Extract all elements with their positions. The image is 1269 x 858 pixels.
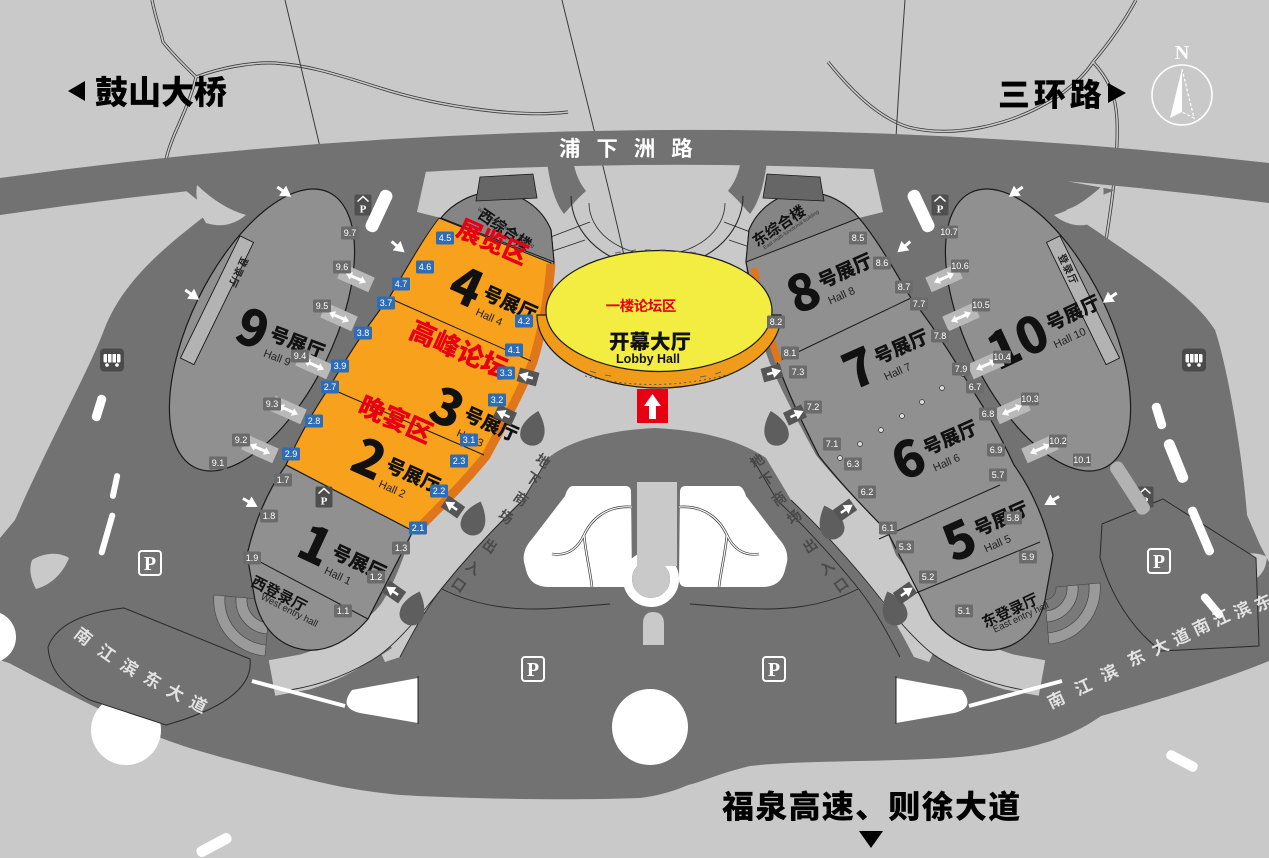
- svg-text:10.4: 10.4: [993, 352, 1011, 362]
- svg-text:6.2: 6.2: [861, 487, 874, 497]
- svg-text:2.2: 2.2: [433, 486, 446, 496]
- svg-text:2.3: 2.3: [453, 456, 466, 466]
- svg-text:1.3: 1.3: [395, 543, 408, 553]
- svg-text:1.8: 1.8: [263, 511, 276, 521]
- svg-text:6.7: 6.7: [969, 382, 982, 392]
- svg-text:10.5: 10.5: [972, 300, 990, 310]
- svg-text:6.9: 6.9: [990, 445, 1003, 455]
- svg-text:2.7: 2.7: [324, 382, 337, 392]
- svg-text:9.1: 9.1: [212, 458, 225, 468]
- svg-text:P: P: [1153, 551, 1165, 573]
- svg-text:4.7: 4.7: [395, 279, 408, 289]
- svg-text:7.7: 7.7: [913, 299, 926, 309]
- svg-text:P: P: [144, 553, 156, 575]
- svg-text:P: P: [360, 204, 367, 216]
- svg-text:5.2: 5.2: [922, 572, 935, 582]
- svg-text:8.6: 8.6: [876, 258, 889, 268]
- svg-text:P: P: [768, 659, 780, 681]
- svg-text:3.7: 3.7: [380, 298, 393, 308]
- svg-text:1.2: 1.2: [370, 572, 383, 582]
- svg-text:2.8: 2.8: [308, 416, 321, 426]
- svg-text:4.1: 4.1: [508, 345, 521, 355]
- svg-text:10.7: 10.7: [940, 227, 958, 237]
- svg-text:5.9: 5.9: [1022, 552, 1035, 562]
- svg-text:6.1: 6.1: [882, 523, 895, 533]
- svg-text:1.7: 1.7: [277, 475, 290, 485]
- svg-text:7.9: 7.9: [955, 364, 968, 374]
- svg-text:7.1: 7.1: [826, 439, 839, 449]
- svg-text:3.8: 3.8: [357, 328, 370, 338]
- svg-text:1.9: 1.9: [246, 553, 259, 563]
- svg-text:9.6: 9.6: [336, 262, 349, 272]
- svg-text:5.1: 5.1: [958, 606, 971, 616]
- svg-text:4.6: 4.6: [419, 262, 432, 272]
- svg-text:3.2: 3.2: [491, 395, 504, 405]
- svg-text:P: P: [321, 496, 328, 508]
- svg-text:1.1: 1.1: [337, 606, 350, 616]
- svg-text:7.8: 7.8: [934, 331, 947, 341]
- svg-text:10.2: 10.2: [1049, 436, 1067, 446]
- svg-text:N: N: [1175, 42, 1190, 64]
- svg-text:9.2: 9.2: [235, 435, 248, 445]
- svg-text:8.5: 8.5: [852, 233, 865, 243]
- svg-text:P: P: [937, 204, 944, 216]
- svg-text:5.3: 5.3: [899, 542, 912, 552]
- svg-text:2.1: 2.1: [412, 523, 425, 533]
- svg-text:4.5: 4.5: [439, 233, 452, 243]
- svg-text:9.7: 9.7: [344, 228, 357, 238]
- svg-text:3.3: 3.3: [500, 368, 513, 378]
- svg-text:8.7: 8.7: [898, 282, 911, 292]
- svg-text:P: P: [527, 659, 539, 681]
- svg-text:8.1: 8.1: [784, 348, 797, 358]
- svg-text:5.7: 5.7: [992, 470, 1005, 480]
- svg-text:2.9: 2.9: [285, 449, 298, 459]
- svg-text:7.3: 7.3: [792, 367, 805, 377]
- svg-text:3.9: 3.9: [334, 361, 347, 371]
- svg-text:9.3: 9.3: [266, 399, 279, 409]
- svg-text:8.2: 8.2: [770, 317, 783, 327]
- svg-text:10.1: 10.1: [1073, 455, 1091, 465]
- svg-text:9.4: 9.4: [294, 351, 307, 361]
- svg-text:10.3: 10.3: [1021, 394, 1039, 404]
- svg-text:6.8: 6.8: [982, 409, 995, 419]
- svg-text:10.6: 10.6: [951, 261, 969, 271]
- svg-text:4.2: 4.2: [518, 316, 531, 326]
- svg-text:5.8: 5.8: [1007, 513, 1020, 523]
- svg-text:6.3: 6.3: [847, 459, 860, 469]
- svg-text:7.2: 7.2: [807, 402, 820, 412]
- svg-text:3.1: 3.1: [463, 435, 476, 445]
- svg-text:Lobby Hall: Lobby Hall: [616, 352, 680, 366]
- svg-text:9.5: 9.5: [316, 301, 329, 311]
